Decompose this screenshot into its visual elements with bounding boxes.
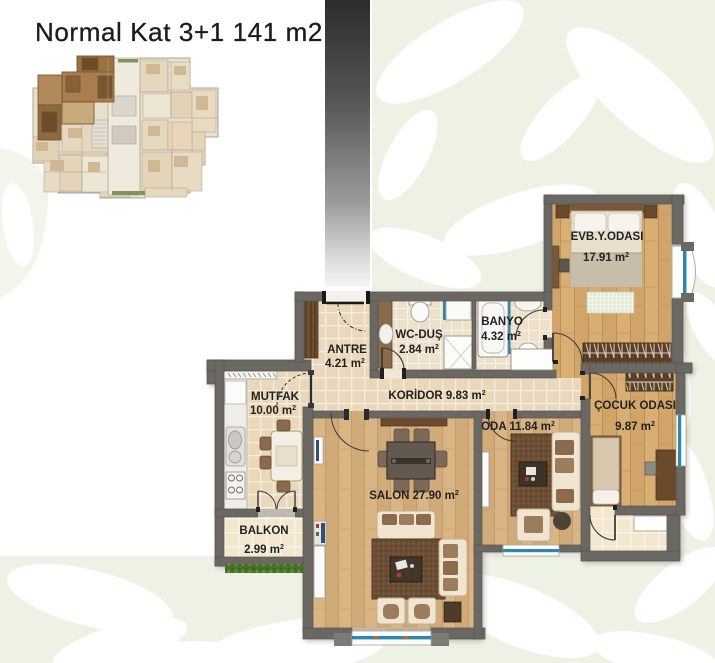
svg-text:Normal Kat 3+1 141 m2: Normal Kat 3+1 141 m2 — [35, 17, 323, 47]
svg-text:ODA 11.84 m2: ODA 11.84 m2 — [481, 421, 555, 433]
svg-text:2.84 m2: 2.84 m2 — [399, 344, 439, 356]
svg-text:9.87 m2: 9.87 m2 — [615, 421, 655, 433]
svg-text:17.91 m2: 17.91 m2 — [583, 252, 629, 264]
svg-text:4.32 m2: 4.32 m2 — [481, 331, 521, 343]
svg-text:BANYO: BANYO — [481, 316, 523, 328]
svg-text:2.99 m2: 2.99 m2 — [244, 544, 284, 556]
svg-text:ANTRE: ANTRE — [327, 344, 367, 356]
svg-text:KORİDOR 9.83 m2: KORİDOR 9.83 m2 — [388, 389, 485, 402]
svg-text:WC-DUŞ: WC-DUŞ — [395, 329, 443, 341]
svg-text:ÇOCUK ODASI: ÇOCUK ODASI — [594, 400, 676, 412]
svg-text:EVB.Y.ODASI: EVB.Y.ODASI — [571, 231, 644, 243]
svg-text:10.00 m2: 10.00 m2 — [250, 405, 296, 417]
svg-text:SALON 27.90 m2: SALON 27.90 m2 — [369, 490, 459, 502]
svg-text:MUTFAK: MUTFAK — [251, 391, 300, 403]
svg-text:BALKON: BALKON — [239, 525, 288, 537]
svg-text:4.21 m2: 4.21 m2 — [325, 358, 365, 370]
